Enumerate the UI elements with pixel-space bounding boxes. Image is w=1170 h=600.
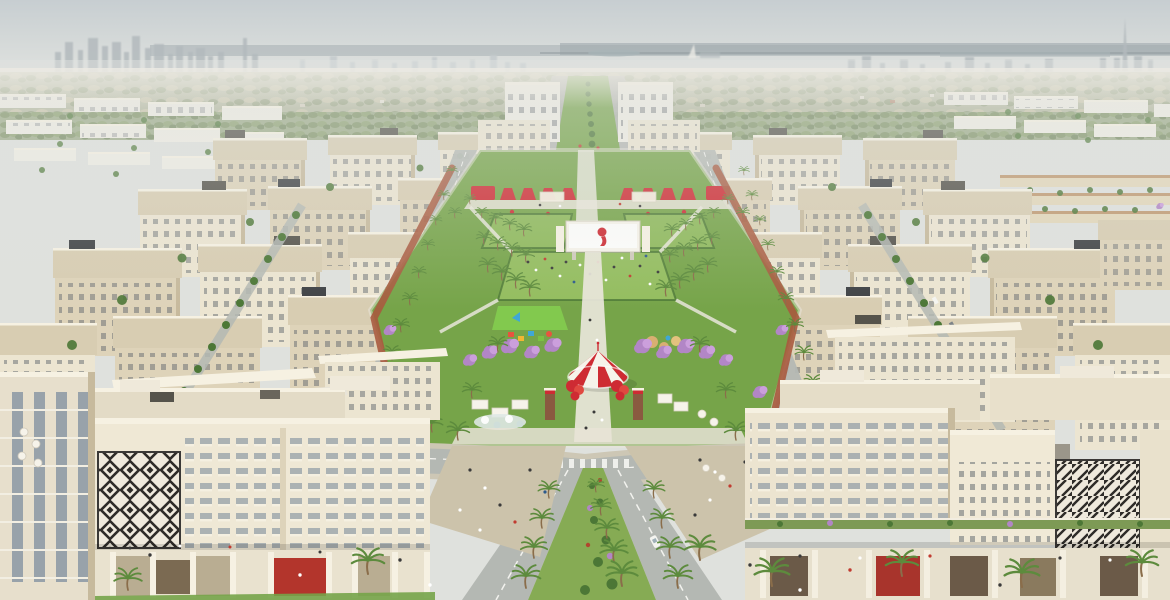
aerial-masterplan-render — [0, 0, 1170, 600]
pattern-facade-left — [98, 452, 180, 548]
tower-left-edge — [0, 372, 95, 600]
umbrella — [703, 465, 710, 472]
pattern-facade-right — [1056, 460, 1140, 552]
scene-canvas — [0, 0, 1170, 600]
main-block-left — [95, 418, 430, 600]
sea-horizon — [150, 43, 1170, 57]
terrace-garden — [745, 518, 1170, 529]
park-lower-plaza — [452, 428, 748, 444]
balcony-slab-right-complex — [745, 408, 955, 528]
umbrella — [719, 475, 726, 482]
red-storefront — [268, 558, 326, 596]
water-feature — [474, 414, 526, 430]
horizon-haze — [0, 68, 1170, 108]
